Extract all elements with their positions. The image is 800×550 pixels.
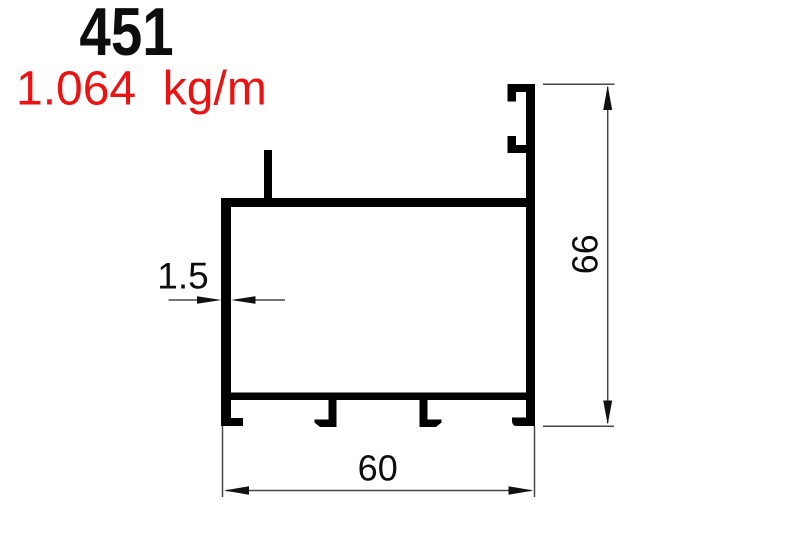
svg-text:66: 66 [564, 234, 605, 274]
svg-text:1.064 kg/m: 1.064 kg/m [16, 63, 267, 116]
svg-text:1.5: 1.5 [157, 256, 208, 297]
svg-text:451: 451 [79, 0, 173, 70]
svg-text:60: 60 [358, 447, 398, 488]
